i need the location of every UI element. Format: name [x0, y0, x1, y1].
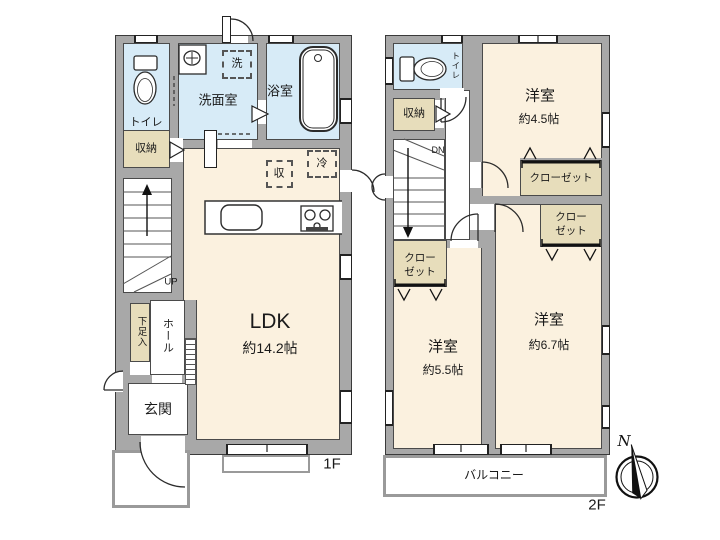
window-toilet-top-2f [441, 35, 463, 43]
room-label-55: 洋室 [428, 338, 458, 355]
door-gap-ldk-right [340, 170, 352, 192]
room-label-45-size: 約4.5帖 [519, 113, 560, 127]
window-ldk-bottom [226, 444, 308, 455]
compass-icon: N [616, 432, 657, 500]
room-45-strip [482, 158, 520, 196]
room-label-toilet-2f: トイレ [450, 52, 460, 81]
plan-annotations: N [0, 0, 720, 540]
hall-2f [445, 90, 470, 240]
window-ldk-right-1 [340, 254, 352, 280]
label-up: UP [164, 278, 177, 289]
room-label-shoebox: 下足入 [135, 316, 146, 348]
door-arc-ldk-right [352, 170, 374, 192]
door-gap-wash-ldk [218, 140, 252, 148]
window-bath-right [340, 98, 352, 124]
compass-n-label: N [616, 432, 631, 450]
room-label-hall: ホール [161, 318, 174, 354]
door-leaf-top [222, 16, 231, 43]
window-55-balcony [433, 444, 489, 455]
label-washer: 洗 [232, 58, 243, 71]
door-gap-room-45 [470, 162, 482, 188]
label-balcony: バルコニー [464, 469, 524, 483]
floorplan-canvas: N トイレ 洗面室 浴室 洗 収納 UP LDK 約14.2帖 収 冷 ホール … [0, 0, 720, 540]
door-gap-entrance [141, 436, 185, 455]
window-45-top [518, 35, 558, 43]
room-label-67: 洋室 [534, 311, 564, 328]
entrance-porch [112, 450, 190, 508]
floor-label-1f: 1F [323, 455, 341, 472]
room-label-entrance: 玄関 [144, 401, 172, 417]
window-toilet-left [385, 57, 393, 85]
room-67-strip [495, 204, 540, 247]
door-gap-storage-1f [170, 138, 183, 162]
closet-label-45: クローゼット [530, 172, 593, 184]
room-label-washroom: 洗面室 [198, 94, 237, 109]
label-fridge: 冷 [317, 158, 328, 171]
window-67-right-2 [602, 405, 610, 429]
door-gap-toilet-2f [440, 88, 464, 98]
floor-label-2f: 2F [588, 496, 606, 513]
room-label-55-size: 約5.5帖 [423, 364, 464, 378]
terrace-step [222, 455, 310, 473]
room-label-storage-1f: 収納 [135, 143, 157, 156]
room-label-ldk-size: 約14.2帖 [242, 340, 297, 356]
hall-extension [130, 362, 150, 375]
room-label-45: 洋室 [525, 87, 555, 104]
door-gap-room-55 [450, 240, 478, 248]
window-45-right [602, 112, 610, 148]
closet-label-67-l2: ゼット [555, 225, 587, 237]
window-toilet-top-1f [134, 35, 158, 43]
window-bath-top [268, 35, 294, 43]
door-leaf-wash [204, 130, 217, 168]
window-ldk-right-2 [340, 390, 352, 424]
room-label-toilet-1f: トイレ [130, 117, 163, 130]
closet-label-55-l2: ゼット [404, 266, 436, 278]
door-gap-bath [258, 100, 266, 124]
door-gap-hall-entr [152, 375, 182, 383]
room-label-ldk: LDK [250, 310, 291, 334]
room-label-storage-2f: 収納 [403, 108, 425, 121]
room-label-bath: 浴室 [267, 85, 293, 100]
window-55-left [385, 390, 393, 426]
label-stock: 収 [274, 168, 285, 181]
label-dn: DN [432, 145, 445, 155]
closet-label-67-l1: クロー [555, 211, 587, 223]
window-gap-left [112, 372, 123, 392]
door-gap-left-wall [385, 176, 393, 198]
closet-label-55-l1: クロー [404, 252, 436, 264]
room-label-67-size: 約6.7帖 [529, 339, 570, 353]
door-halfmoon-left-2f [372, 174, 385, 200]
door-gap-room-67 [470, 204, 495, 230]
door-gap-storage-2f [435, 100, 444, 128]
sliding-door-hall-ldk [185, 338, 196, 385]
window-67-right-1 [602, 325, 610, 355]
room-55-strip [447, 248, 482, 287]
window-67-balcony [500, 444, 552, 455]
